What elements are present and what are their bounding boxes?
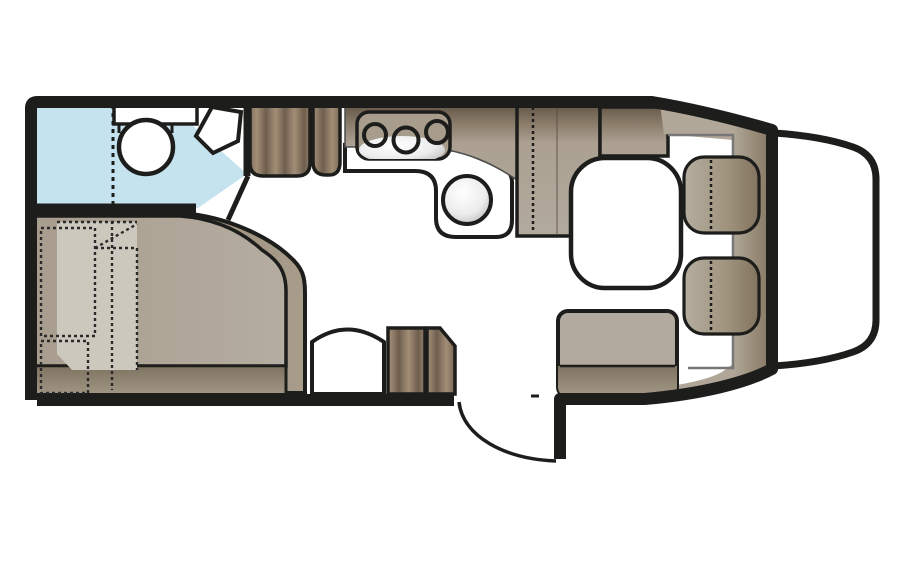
bed-foot-band (33, 366, 286, 393)
sideboard (600, 107, 668, 156)
cab-seat-front (684, 157, 759, 233)
bed (33, 213, 305, 393)
entry-bench (312, 330, 384, 395)
toilet-bowl (119, 120, 173, 174)
entry-cabinet-1 (388, 328, 425, 394)
entry-door-arc (459, 402, 556, 461)
dinette-table (571, 158, 681, 288)
cab-front-outline (774, 133, 876, 366)
bed-fold-panel (57, 222, 137, 370)
floorplan-canvas (0, 0, 900, 562)
cab-seat-rear (684, 258, 759, 334)
wardrobe-unit-2 (313, 103, 340, 175)
wardrobe (250, 103, 340, 176)
kitchen-sink (443, 176, 491, 224)
dinette-bench (558, 311, 677, 397)
wardrobe-unit-1 (250, 103, 310, 176)
caravan-floorplan (0, 0, 900, 562)
